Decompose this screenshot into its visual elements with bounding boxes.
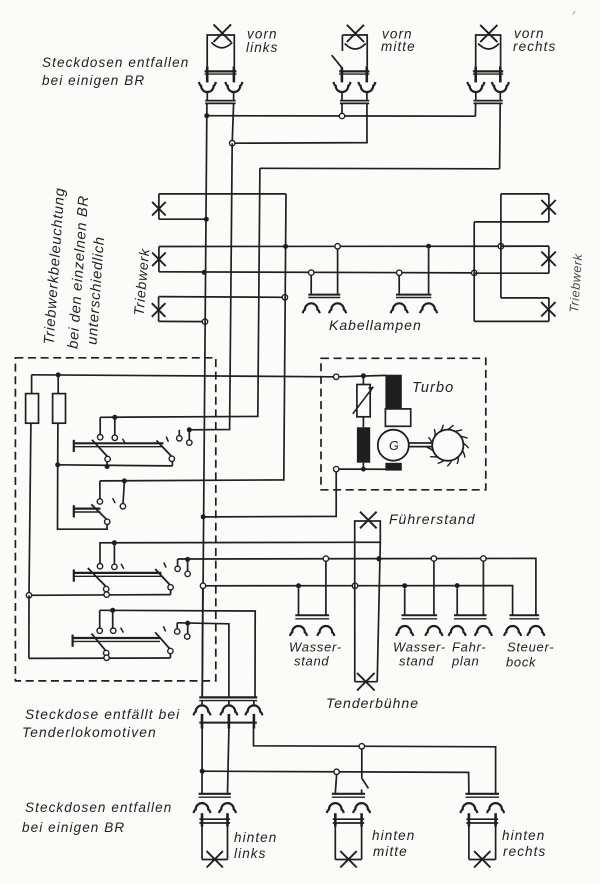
svg-text:bei einigen BR: bei einigen BR [22, 820, 125, 835]
svg-text:bock: bock [506, 655, 537, 670]
svg-text:stand: stand [294, 654, 329, 669]
svg-text:G: G [389, 439, 399, 453]
svg-text:Steckdosen entfallen: Steckdosen entfallen [42, 55, 189, 70]
svg-text:Steckdosen entfallen: Steckdosen entfallen [25, 800, 172, 815]
svg-text:Führerstand: Führerstand [389, 511, 476, 527]
svg-text:mitte: mitte [381, 39, 416, 54]
svg-text:Steuer-: Steuer- [507, 640, 554, 655]
svg-text:mitte: mitte [373, 844, 408, 859]
svg-text:bei einigen BR: bei einigen BR [42, 73, 145, 88]
svg-text:links: links [234, 846, 267, 861]
svg-text:rechts: rechts [503, 844, 546, 859]
svg-text:hinten: hinten [234, 830, 277, 845]
svg-text:Tenderlokomotiven: Tenderlokomotiven [22, 725, 157, 740]
svg-text:hinten: hinten [372, 828, 415, 843]
svg-text:Steckdose entfällt bei: Steckdose entfällt bei [25, 707, 180, 722]
svg-text:Turbo: Turbo [412, 380, 454, 396]
svg-text:rechts: rechts [513, 39, 556, 54]
svg-text:Wasser-: Wasser- [289, 640, 342, 655]
svg-text:stand: stand [399, 654, 434, 669]
svg-text:Wasser-: Wasser- [393, 640, 446, 655]
svg-text:links: links [246, 40, 279, 55]
svg-text:plan: plan [451, 654, 479, 669]
svg-text:Tenderbühne: Tenderbühne [326, 695, 419, 711]
svg-text:Fahr-: Fahr- [452, 640, 486, 655]
svg-text:Kabellampen: Kabellampen [329, 317, 422, 333]
svg-text:hinten: hinten [502, 828, 545, 843]
